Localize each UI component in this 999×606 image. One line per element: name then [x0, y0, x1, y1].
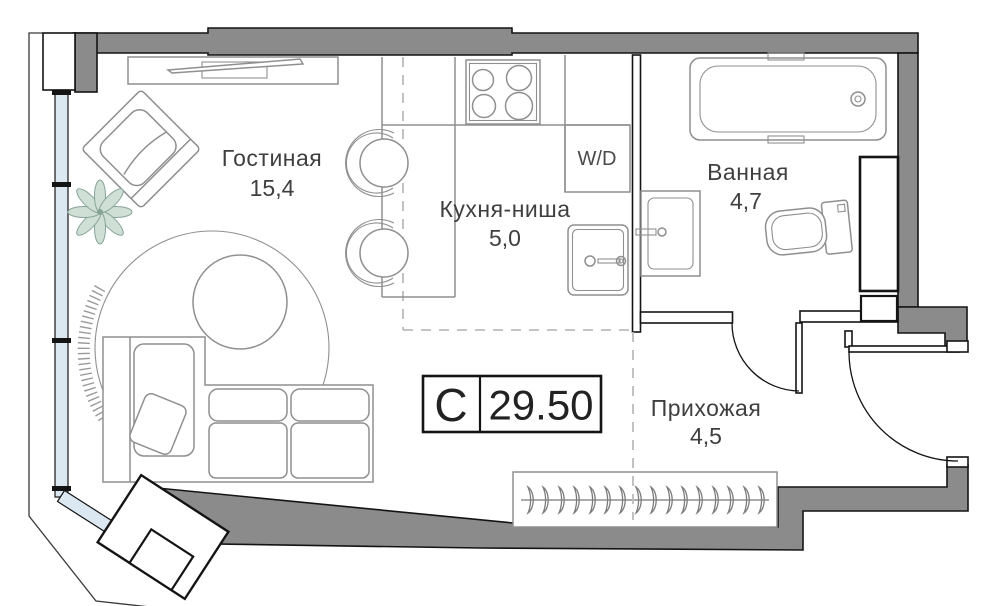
washer-dryer: W/D [565, 125, 630, 192]
window-glazing-vertical [55, 90, 68, 497]
area-badge: С 29.50 [423, 376, 601, 432]
floor-plan-svg: W/D [0, 0, 999, 606]
entrance-door-jamb-bottom [947, 457, 968, 467]
bathtub [690, 53, 886, 143]
sofa-back-pillow [291, 389, 369, 421]
tv-console [128, 57, 338, 84]
utility-shaft [860, 157, 898, 291]
bathroom-left-wall [633, 55, 641, 332]
kitchen-label: Кухня-ниша [439, 196, 570, 222]
bathroom-door [732, 323, 802, 393]
entrance-door-connector [845, 331, 852, 347]
living-room-area: 15,4 [250, 175, 295, 201]
bar-stool [346, 129, 408, 196]
bathroom-sink [636, 191, 700, 276]
bathroom-door-swing [732, 323, 799, 391]
potted-plant [68, 180, 132, 244]
apartment-type: С [434, 379, 467, 431]
sofa-seat-cushion [291, 423, 369, 478]
window-pier [43, 33, 75, 90]
kitchen-area: 5,0 [489, 225, 521, 251]
bathroom-bottom-wall-left [641, 312, 733, 323]
bathroom-area: 4,7 [730, 188, 762, 214]
entrance-door-leaf [849, 346, 959, 352]
utility-shaft-small [861, 296, 897, 321]
bar-stool [346, 219, 408, 286]
entrance-door [845, 331, 968, 467]
stove [466, 60, 540, 124]
entrance-door-jamb-top [947, 341, 968, 352]
wall-top-left-column [75, 33, 97, 92]
apartment-total-area: 29.50 [488, 382, 593, 429]
hallway-label: Прихожая [651, 395, 762, 421]
wardrobe-rail [513, 472, 777, 527]
toilet [764, 200, 853, 260]
living-room-label: Гостиная [222, 145, 323, 171]
hallway-area: 4,5 [690, 423, 722, 449]
sofa-seat-cushion [209, 423, 287, 478]
bathroom-door-leaf [796, 323, 802, 393]
floor-plan: W/D [0, 0, 999, 606]
entrance-door-swing [849, 352, 958, 461]
sofa-back-pillow [209, 389, 287, 421]
bathroom-label: Ванная [707, 159, 789, 185]
wall-top [73, 28, 918, 55]
washer-dryer-label: W/D [578, 148, 617, 170]
coffee-table [193, 255, 287, 349]
kitchen-sink [568, 225, 628, 295]
corner-sofa [103, 337, 373, 482]
wall-right-upper [898, 53, 918, 307]
